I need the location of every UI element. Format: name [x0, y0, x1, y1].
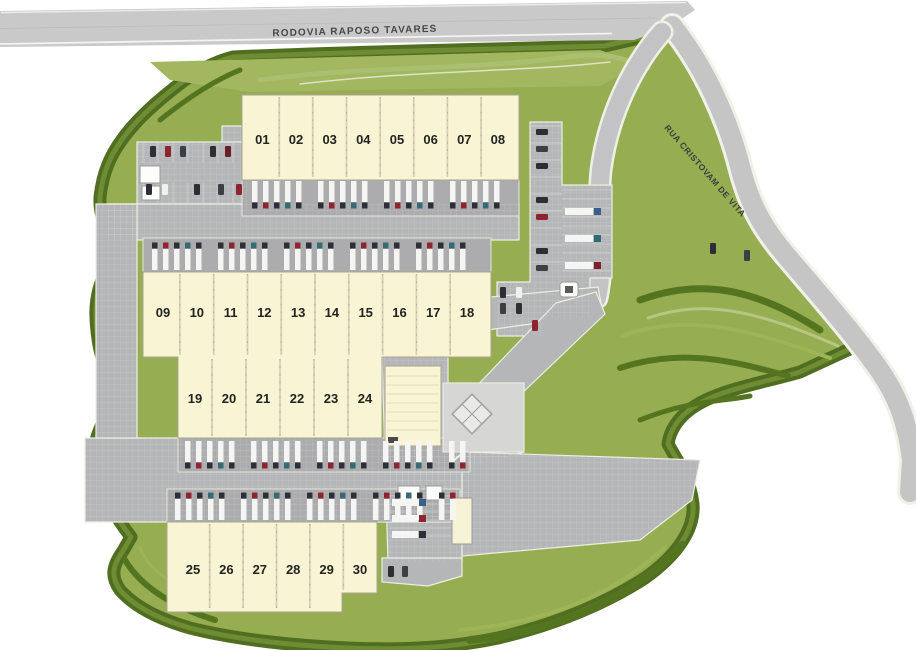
truck-trailer: [416, 441, 422, 462]
car: [516, 287, 522, 298]
truck-cab: [163, 243, 169, 249]
truck-cab: [240, 243, 246, 249]
truck-trailer: [318, 181, 324, 202]
unit-label[interactable]: 12: [257, 305, 271, 320]
truck-cab: [351, 493, 357, 499]
truck-cab: [362, 203, 368, 209]
truck-cab: [252, 203, 258, 209]
truck-trailer: [175, 499, 181, 520]
truck-cab: [152, 243, 158, 249]
unit-label[interactable]: 26: [219, 562, 233, 577]
office-building[interactable]: [385, 366, 441, 446]
truck-cab: [219, 493, 225, 499]
unit-label[interactable]: 23: [324, 391, 338, 406]
truck-cab: [218, 463, 224, 469]
truck-trailer: [383, 249, 389, 270]
truck-trailer: [317, 249, 323, 270]
truck-trailer: [460, 441, 466, 462]
truck-cab: [318, 493, 324, 499]
truck-trailer: [251, 249, 257, 270]
car: [536, 129, 548, 135]
truck-trailer: [351, 499, 357, 520]
truck-trailer: [394, 249, 400, 270]
truck-cab: [594, 208, 601, 215]
truck-trailer: [361, 249, 367, 270]
unit-label[interactable]: 14: [325, 305, 340, 320]
truck-trailer: [241, 499, 247, 520]
unit-label[interactable]: 25: [186, 562, 200, 577]
truck-cab: [262, 463, 268, 469]
master-plan-svg: 0102030405060708091011121314151617181920…: [0, 0, 916, 650]
unit-label[interactable]: 17: [426, 305, 440, 320]
car: [165, 146, 171, 157]
unit-label[interactable]: 18: [460, 305, 474, 320]
car: [536, 214, 548, 220]
truck-trailer: [460, 249, 466, 270]
truck-trailer: [196, 441, 202, 462]
truck-cab: [384, 493, 390, 499]
truck-cab: [450, 493, 456, 499]
truck-trailer: [318, 499, 324, 520]
truck-trailer: [186, 499, 192, 520]
truck-cab: [351, 203, 357, 209]
truck-trailer: [351, 181, 357, 202]
truck-trailer: [285, 499, 291, 520]
truck-cab: [395, 493, 401, 499]
truck-cab: [185, 243, 191, 249]
truck-cab: [196, 243, 202, 249]
truck-cab: [450, 203, 456, 209]
truck-cab: [329, 493, 335, 499]
truck-cab: [472, 203, 478, 209]
truck-cab: [350, 463, 356, 469]
truck-trailer: [208, 499, 214, 520]
truck-cab: [394, 243, 400, 249]
truck-cab: [175, 493, 181, 499]
truck-cab: [373, 493, 379, 499]
truck-cab: [329, 203, 335, 209]
truck-cab: [295, 463, 301, 469]
truck-trailer: [565, 235, 593, 242]
car: [236, 184, 242, 195]
truck-cab: [427, 463, 433, 469]
truck-cab: [427, 243, 433, 249]
truck-cab: [262, 243, 268, 249]
truck-cab: [483, 203, 489, 209]
truck-cab: [185, 463, 191, 469]
truck-cab: [438, 243, 444, 249]
truck-cab: [419, 531, 426, 538]
kiosk-icon: [565, 286, 573, 293]
truck-trailer: [439, 499, 445, 520]
truck-cab: [428, 203, 434, 209]
truck-trailer: [307, 499, 313, 520]
truck-cab: [284, 243, 290, 249]
car: [194, 184, 200, 195]
truck-cab: [439, 493, 445, 499]
truck-trailer: [274, 181, 280, 202]
truck-cab: [417, 493, 423, 499]
truck-trailer: [263, 499, 269, 520]
truck-trailer: [197, 499, 203, 520]
truck-cab: [383, 243, 389, 249]
unit-label[interactable]: 27: [253, 562, 267, 577]
car: [500, 287, 506, 298]
car: [710, 243, 716, 254]
truck-trailer: [405, 441, 411, 462]
unit-label[interactable]: 09: [156, 305, 170, 320]
truck-trailer: [328, 441, 334, 462]
truck-cab: [406, 203, 412, 209]
truck-trailer: [306, 249, 312, 270]
truck-trailer: [384, 181, 390, 202]
truck-trailer: [207, 441, 213, 462]
truck-trailer: [252, 499, 258, 520]
unit-label[interactable]: 30: [353, 562, 367, 577]
truck-cab: [384, 203, 390, 209]
site-plan-stage: 0102030405060708091011121314151617181920…: [0, 0, 916, 650]
truck-cab: [494, 203, 500, 209]
car: [744, 250, 750, 261]
unit-label[interactable]: 04: [356, 132, 371, 147]
truck-cab: [394, 463, 400, 469]
truck-cab: [328, 243, 334, 249]
truck-trailer: [328, 249, 334, 270]
car: [536, 197, 548, 203]
truck-cab: [460, 463, 466, 469]
truck-trailer: [392, 515, 418, 522]
unit-label[interactable]: 16: [392, 305, 406, 320]
truck-trailer: [340, 499, 346, 520]
truck-cab: [186, 493, 192, 499]
truck-trailer: [494, 181, 500, 202]
truck-cab: [296, 203, 302, 209]
truck-trailer: [285, 181, 291, 202]
truck-trailer: [251, 441, 257, 462]
car: [532, 320, 538, 331]
car: [500, 303, 506, 314]
truck-cab: [306, 243, 312, 249]
unit-label[interactable]: 08: [491, 132, 505, 147]
unit-label[interactable]: 21: [256, 391, 270, 406]
unit-label[interactable]: 03: [322, 132, 336, 147]
truck-trailer: [472, 181, 478, 202]
truck-cab: [361, 463, 367, 469]
truck-cab: [174, 243, 180, 249]
truck-trailer: [373, 499, 379, 520]
car: [536, 146, 548, 152]
truck-trailer: [483, 181, 489, 202]
truck-trailer: [450, 499, 456, 520]
truck-cab: [340, 493, 346, 499]
car: [536, 265, 548, 271]
truck-cab: [241, 493, 247, 499]
truck-trailer: [384, 499, 390, 520]
northwest-kiosk-1: [140, 166, 160, 183]
truck-trailer: [229, 249, 235, 270]
car: [225, 146, 231, 157]
truck-trailer: [329, 499, 335, 520]
truck-trailer: [240, 249, 246, 270]
truck-cab: [274, 493, 280, 499]
truck-trailer: [317, 441, 323, 462]
truck-trailer: [252, 181, 258, 202]
truck-trailer: [449, 249, 455, 270]
unit-label[interactable]: 13: [291, 305, 305, 320]
truck-cab: [307, 493, 313, 499]
truck-cab: [207, 463, 213, 469]
truck-trailer: [417, 181, 423, 202]
truck-trailer: [406, 181, 412, 202]
truck-trailer: [262, 441, 268, 462]
truck-trailer: [152, 249, 158, 270]
truck-trailer: [394, 441, 400, 462]
truck-trailer: [340, 181, 346, 202]
truck-trailer: [449, 441, 455, 462]
truck-cab: [449, 463, 455, 469]
truck-cab: [229, 243, 235, 249]
truck-trailer: [416, 249, 422, 270]
truck-cab: [251, 243, 257, 249]
car: [516, 303, 522, 314]
truck-trailer: [284, 249, 290, 270]
truck-cab: [208, 493, 214, 499]
truck-cab: [318, 203, 324, 209]
truck-trailer: [372, 249, 378, 270]
car: [146, 184, 152, 195]
truck-cab: [594, 262, 601, 269]
truck-trailer: [392, 499, 418, 506]
truck-trailer: [174, 249, 180, 270]
truck-trailer: [461, 181, 467, 202]
car: [388, 566, 394, 577]
car: [210, 146, 216, 157]
truck-trailer: [392, 531, 418, 538]
unit-label[interactable]: 15: [358, 305, 372, 320]
truck-cab: [416, 463, 422, 469]
car: [162, 184, 168, 195]
truck-cab: [340, 203, 346, 209]
truck-cab: [361, 243, 367, 249]
truck-trailer: [262, 249, 268, 270]
truck-cab: [372, 243, 378, 249]
truck-cab: [196, 463, 202, 469]
truck-cab: [594, 235, 601, 242]
truck-trailer: [185, 249, 191, 270]
truck-trailer: [438, 249, 444, 270]
truck-cab: [328, 463, 334, 469]
unit-label[interactable]: 28: [286, 562, 300, 577]
truck-cab: [416, 243, 422, 249]
unit-label[interactable]: 06: [423, 132, 437, 147]
truck-cab: [317, 463, 323, 469]
truck-trailer: [218, 441, 224, 462]
truck-trailer: [296, 181, 302, 202]
truck-trailer: [274, 499, 280, 520]
unit-label[interactable]: 11: [224, 305, 238, 320]
unit-label[interactable]: 02: [289, 132, 303, 147]
truck-trailer: [450, 181, 456, 202]
truck-trailer: [196, 249, 202, 270]
truck-trailer: [427, 249, 433, 270]
truck-trailer: [395, 181, 401, 202]
truck-trailer: [219, 499, 225, 520]
truck-cab: [395, 203, 401, 209]
truck-trailer: [185, 441, 191, 462]
car: [536, 163, 548, 169]
truck-cab: [218, 243, 224, 249]
truck-cab: [419, 499, 426, 506]
truck-trailer: [383, 441, 389, 462]
truck-trailer: [362, 181, 368, 202]
truck-trailer: [350, 249, 356, 270]
car: [150, 146, 156, 157]
truck-trailer: [361, 441, 367, 462]
truck-trailer: [329, 181, 335, 202]
truck-cab: [197, 493, 203, 499]
truck-cab: [461, 203, 467, 209]
truck-cab: [285, 203, 291, 209]
truck-cab: [284, 463, 290, 469]
truck-trailer: [163, 249, 169, 270]
unit-label[interactable]: 20: [222, 391, 236, 406]
truck-trailer: [263, 181, 269, 202]
truck-cab: [419, 515, 426, 522]
truck-trailer: [428, 181, 434, 202]
truck-trailer: [273, 441, 279, 462]
car: [536, 248, 548, 254]
truck-cab: [383, 463, 389, 469]
truck-cab: [295, 243, 301, 249]
truck-trailer: [339, 441, 345, 462]
truck-trailer: [350, 441, 356, 462]
truck-cab: [317, 243, 323, 249]
truck-trailer: [295, 441, 301, 462]
car: [180, 146, 186, 157]
truck-cab: [273, 463, 279, 469]
truck-trailer: [295, 249, 301, 270]
truck-cab: [263, 203, 269, 209]
car: [218, 184, 224, 195]
unit-label[interactable]: 01: [255, 132, 269, 147]
car: [402, 566, 408, 577]
truck-cab: [417, 203, 423, 209]
truck-cab: [405, 463, 411, 469]
unit-label[interactable]: 05: [390, 132, 404, 147]
truck-cab: [285, 493, 291, 499]
truck-cab: [339, 463, 345, 469]
truck-cab: [252, 493, 258, 499]
truck-trailer: [218, 249, 224, 270]
truck-cab: [460, 243, 466, 249]
truck-cab: [350, 243, 356, 249]
truck-cab: [449, 243, 455, 249]
truck-cab: [263, 493, 269, 499]
truck-cab: [251, 463, 257, 469]
unit-label[interactable]: 24: [358, 391, 373, 406]
truck-cab: [274, 203, 280, 209]
unit-label[interactable]: 10: [190, 305, 204, 320]
truck-trailer: [284, 441, 290, 462]
truck-trailer: [229, 441, 235, 462]
truck-cab: [406, 493, 412, 499]
unit-label[interactable]: 07: [457, 132, 471, 147]
unit-label[interactable]: 29: [319, 562, 333, 577]
truck-trailer: [427, 441, 433, 462]
truck-trailer: [565, 262, 593, 269]
unit-label[interactable]: 22: [290, 391, 304, 406]
truck-cab: [229, 463, 235, 469]
unit-label[interactable]: 19: [188, 391, 202, 406]
truck-trailer: [565, 208, 593, 215]
